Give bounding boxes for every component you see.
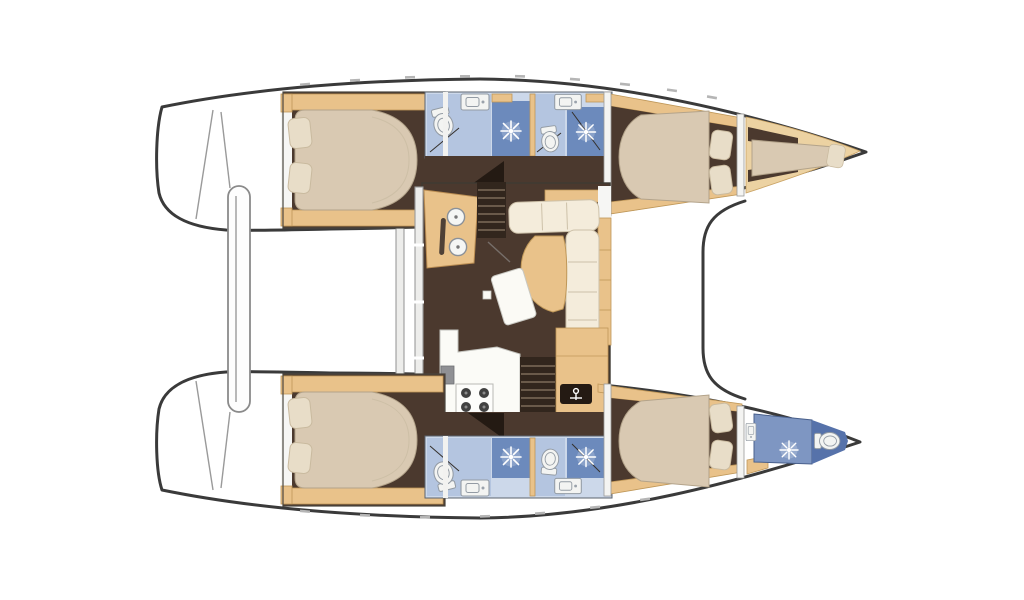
cockpit-bench	[228, 186, 250, 412]
nav-cabinet	[556, 328, 608, 416]
bulkhead	[737, 406, 744, 478]
floor-detail	[483, 291, 491, 299]
shower-spray-icon	[501, 447, 521, 467]
pillow	[709, 129, 734, 160]
bathroom-sink	[461, 94, 489, 110]
shower-spray-icon	[577, 448, 596, 467]
bathroom-sink	[555, 94, 582, 109]
pillow	[287, 162, 312, 194]
shower-spray-icon	[577, 123, 596, 142]
pillow	[709, 164, 734, 195]
pillow	[287, 397, 312, 429]
pillow	[287, 117, 312, 149]
double-bed	[295, 392, 417, 488]
pillow	[826, 143, 846, 168]
hull-lining	[598, 218, 611, 345]
aft-cabin-port	[281, 374, 445, 506]
bathrooms-starboard	[425, 92, 612, 158]
galley-sink-counter	[424, 190, 478, 268]
bathroom-sink	[555, 478, 582, 493]
double-bed	[619, 395, 709, 487]
bathroom-sink	[461, 480, 489, 496]
coachroof-front-edge	[703, 201, 745, 399]
pillow	[709, 402, 734, 433]
cabin-shelf	[283, 94, 443, 110]
double-bed	[295, 110, 417, 210]
cabin-shelf	[283, 376, 443, 392]
catamaran-floorplan	[0, 0, 1024, 600]
bulkhead	[737, 114, 744, 196]
forepeak-berth-starboard	[746, 117, 860, 193]
shower-spray-icon	[501, 121, 521, 141]
toilet	[814, 433, 840, 450]
bow-bathroom-port	[746, 414, 848, 474]
pillow	[709, 439, 734, 470]
bathroom-sink	[746, 423, 756, 440]
pillow	[287, 442, 312, 474]
bathrooms-port	[425, 436, 612, 498]
companionway-stairs-port	[520, 357, 556, 416]
shower-spray-icon	[780, 441, 798, 459]
bulkhead	[604, 384, 611, 496]
double-bed	[619, 111, 709, 203]
cabin-shelf	[283, 488, 443, 504]
